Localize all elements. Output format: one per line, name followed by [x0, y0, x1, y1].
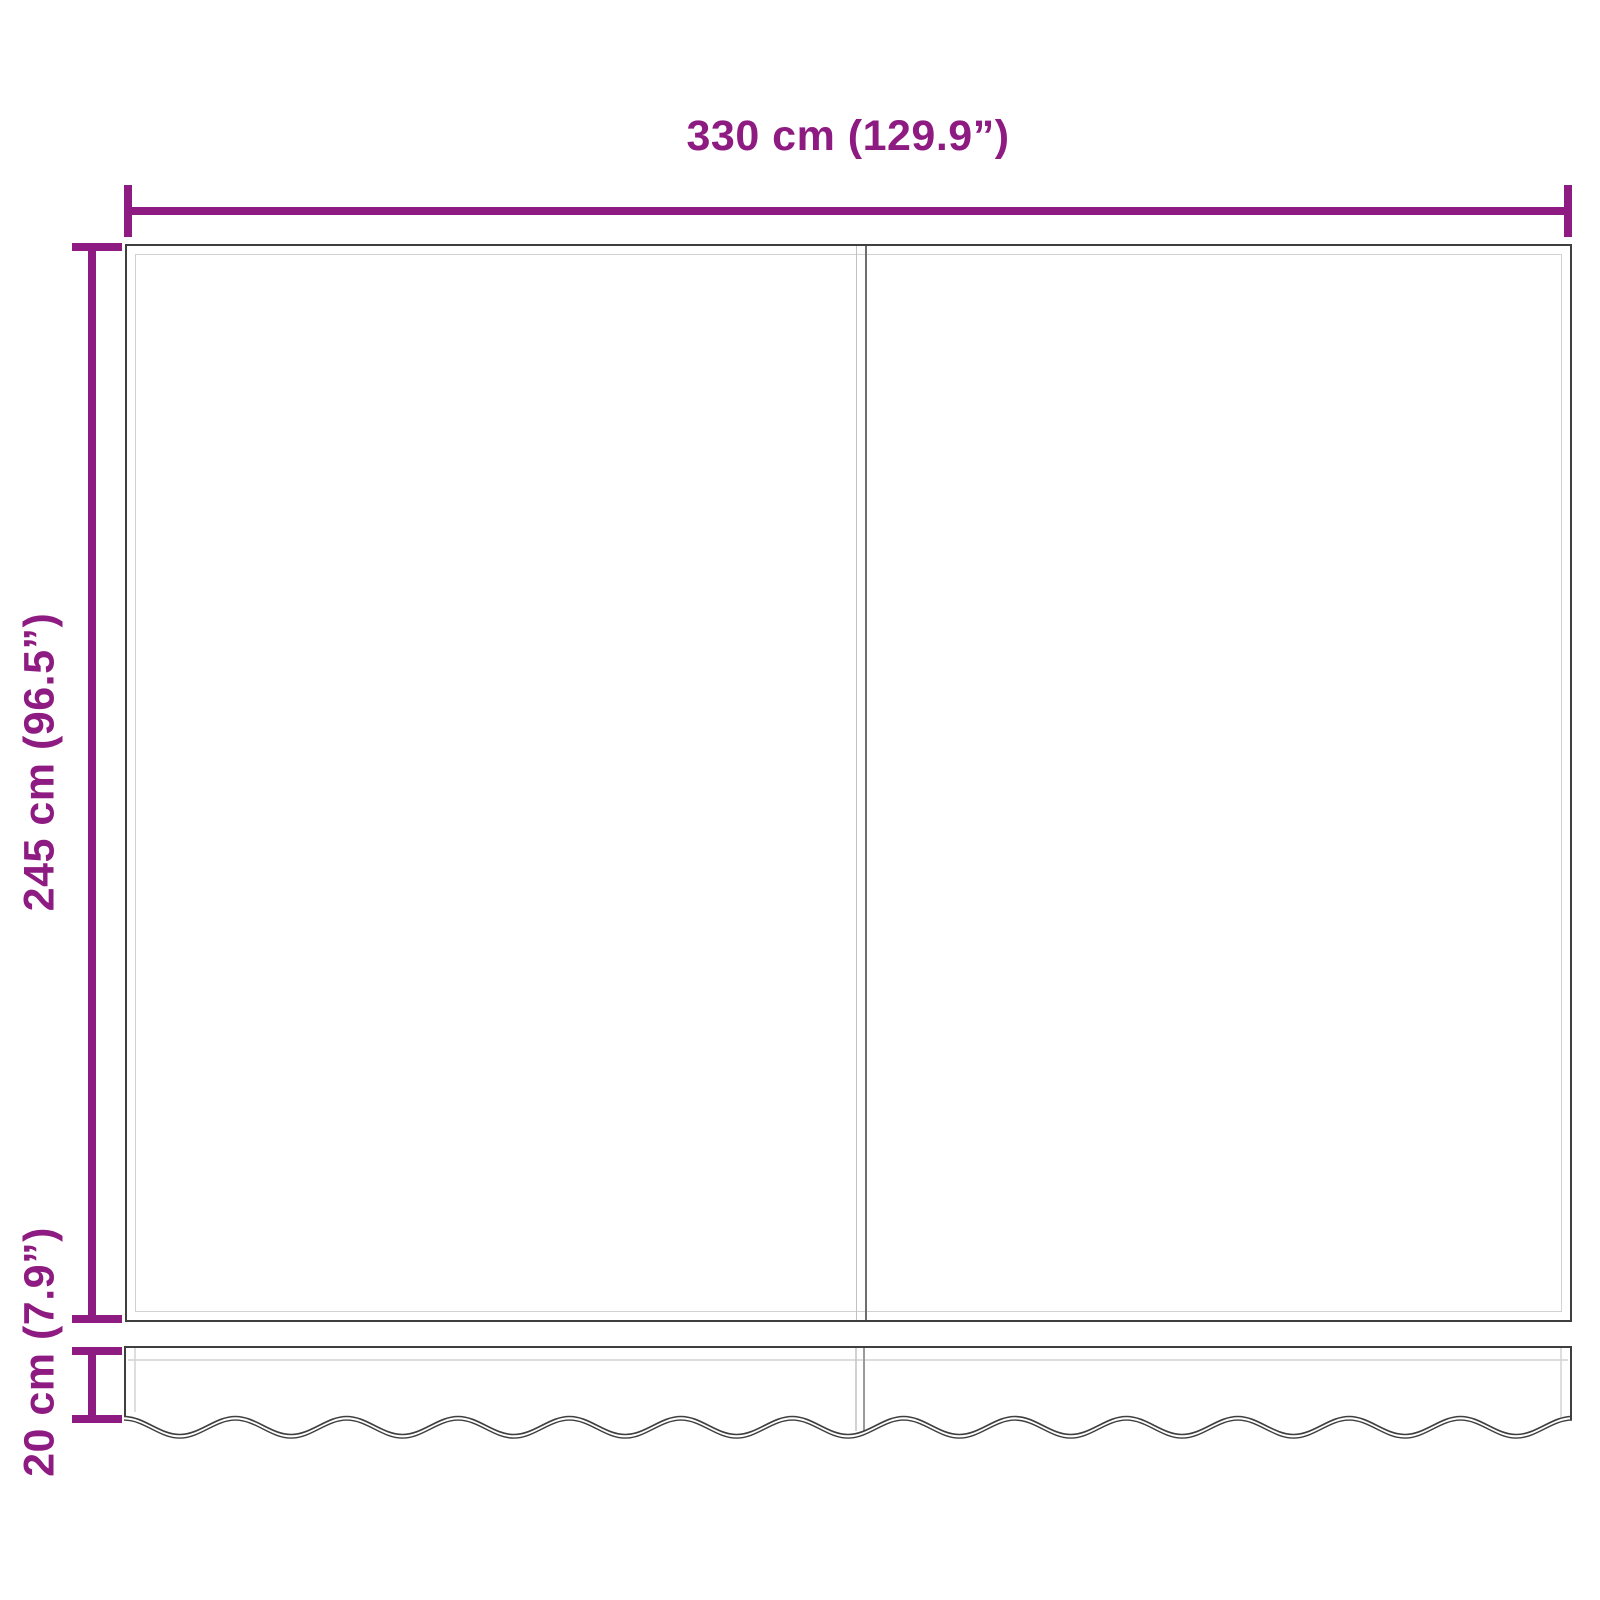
valance-height-dimension-line [88, 1351, 96, 1419]
awning-fabric-panel [125, 244, 1572, 1322]
product-dimension-diagram: 330 cm (129.9”) 245 cm (96.5”) 20 cm (7.… [0, 0, 1600, 1600]
width-dimension-line [124, 207, 1572, 215]
width-dimension-right-tick [1564, 185, 1572, 237]
valance-wave-edge-lower [124, 1420, 1572, 1438]
valance-outline [125, 1347, 1571, 1420]
valance-flounce [124, 1346, 1572, 1446]
fabric-hem-seam [135, 254, 1562, 1312]
height-dimension-top-tick [72, 243, 122, 251]
panel-center-seam-light [856, 246, 857, 1320]
valance-dimension-top-tick [72, 1347, 122, 1355]
height-dimension-line [88, 247, 96, 1319]
height-dimension-bottom-tick [72, 1315, 122, 1323]
width-dimension-left-tick [124, 185, 132, 237]
width-dimension-label: 330 cm (129.9”) [686, 112, 1009, 161]
valance-dimension-bottom-tick [72, 1415, 122, 1423]
panel-center-seam [865, 246, 867, 1320]
height-dimension-label: 245 cm (96.5”) [16, 613, 65, 912]
valance-wave-edge-upper [124, 1417, 1572, 1435]
valance-height-dimension-label: 20 cm (7.9”) [16, 1227, 65, 1477]
